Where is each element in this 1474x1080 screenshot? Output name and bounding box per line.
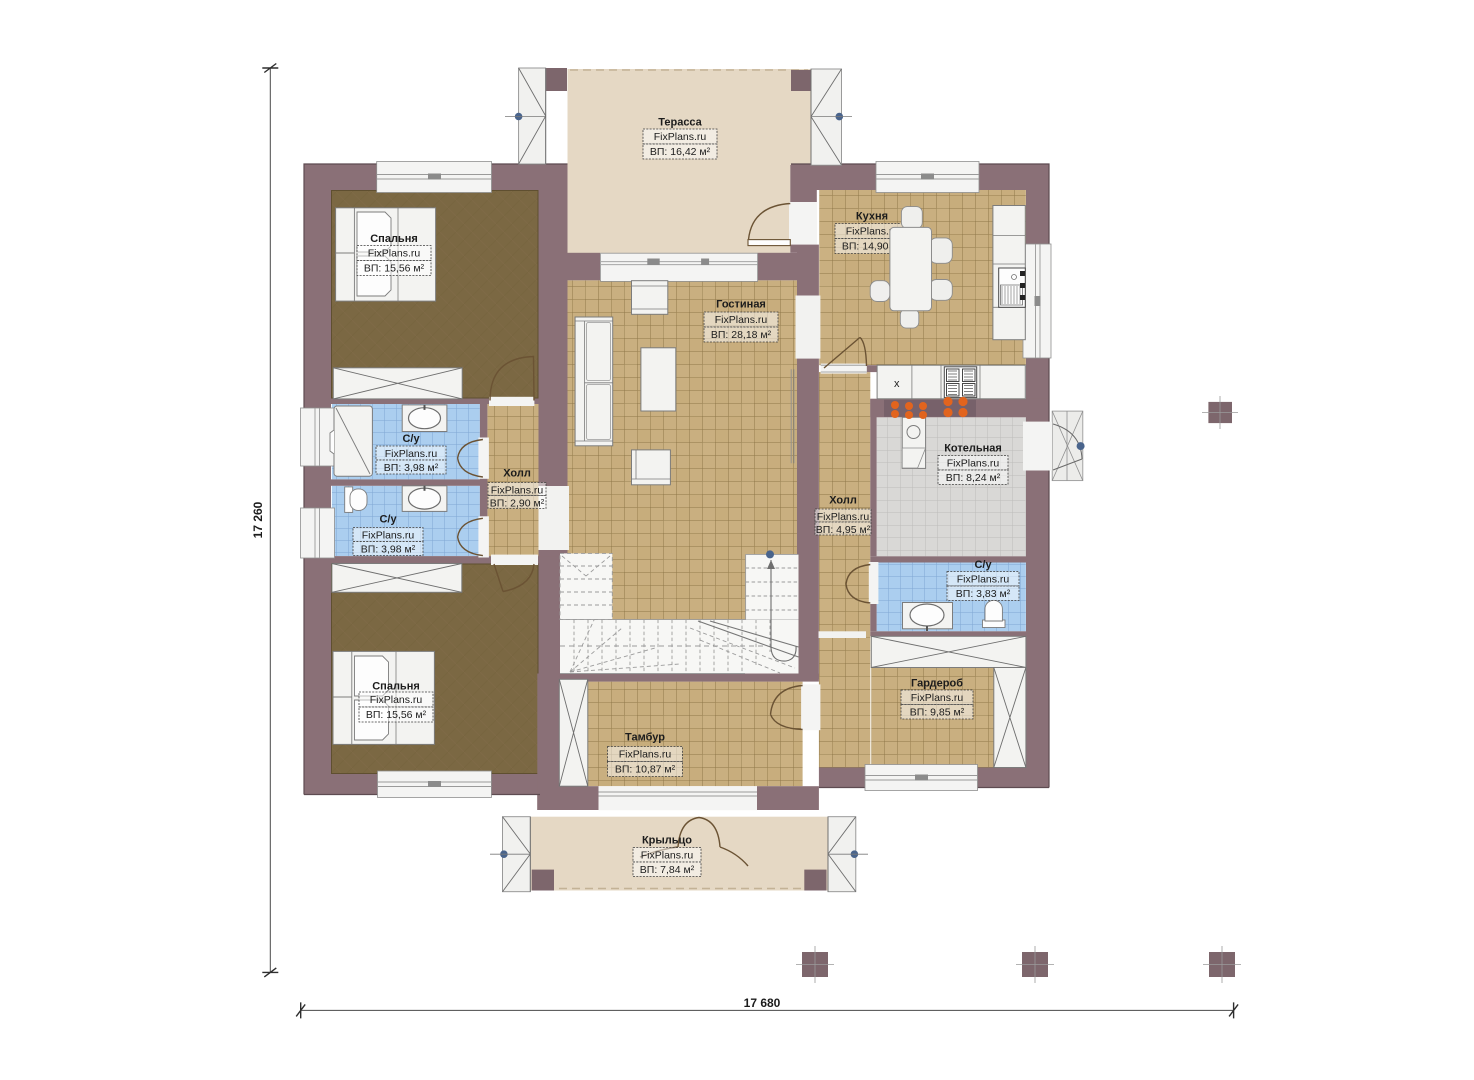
svg-text:FixPlans.ru: FixPlans.ru xyxy=(385,448,438,460)
svg-text:С/у: С/у xyxy=(379,514,397,526)
svg-text:ВП: 15,56 м²: ВП: 15,56 м² xyxy=(366,709,427,721)
svg-text:FixPlans.ru: FixPlans.ru xyxy=(654,131,707,143)
svg-text:FixPlans.ru: FixPlans.ru xyxy=(362,530,415,542)
svg-text:ВП: 10,87 м²: ВП: 10,87 м² xyxy=(615,764,676,776)
svg-text:Спальня: Спальня xyxy=(370,233,418,245)
svg-text:ВП: 15,56 м²: ВП: 15,56 м² xyxy=(364,263,425,275)
svg-text:ВП: 3,98 м²: ВП: 3,98 м² xyxy=(384,462,439,474)
svg-text:ВП: 3,83 м²: ВП: 3,83 м² xyxy=(956,588,1011,600)
svg-text:Спальня: Спальня xyxy=(372,681,420,693)
svg-text:x: x xyxy=(894,378,900,390)
svg-text:С/у: С/у xyxy=(402,433,420,445)
svg-text:ВП: 8,24 м²: ВП: 8,24 м² xyxy=(946,472,1001,484)
svg-text:FixPlans.ru: FixPlans.ru xyxy=(619,749,672,761)
svg-text:Крыльцо: Крыльцо xyxy=(642,835,692,847)
svg-text:FixPlans.ru: FixPlans.ru xyxy=(370,694,423,706)
svg-text:Холл: Холл xyxy=(829,495,857,507)
svg-text:Холл: Холл xyxy=(503,468,531,480)
svg-text:17 260: 17 260 xyxy=(251,501,265,538)
svg-text:ВП: 2,90 м²: ВП: 2,90 м² xyxy=(490,498,545,510)
svg-text:FixPlans.ru: FixPlans.ru xyxy=(715,314,768,326)
svg-text:FixPlans.ru: FixPlans.ru xyxy=(817,511,870,523)
svg-text:ВП: 28,18 м²: ВП: 28,18 м² xyxy=(711,329,772,341)
svg-text:Терасса: Терасса xyxy=(658,117,702,129)
svg-text:ВП: 16,42 м²: ВП: 16,42 м² xyxy=(650,146,711,158)
svg-text:ВП: 4,95 м²: ВП: 4,95 м² xyxy=(816,524,871,536)
svg-text:FixPlans.ru: FixPlans.ru xyxy=(368,248,421,260)
svg-text:17 680: 17 680 xyxy=(744,996,781,1010)
svg-text:Кухня: Кухня xyxy=(856,211,888,223)
svg-text:Гардероб: Гардероб xyxy=(911,678,963,690)
svg-text:Гостиная: Гостиная xyxy=(716,299,766,311)
svg-text:С/у: С/у xyxy=(974,559,992,571)
svg-text:ВП: 3,98 м²: ВП: 3,98 м² xyxy=(361,544,416,556)
svg-text:FixPlans.ru: FixPlans.ru xyxy=(641,850,694,862)
svg-text:ВП: 7,84 м²: ВП: 7,84 м² xyxy=(640,864,695,876)
svg-text:Котельная: Котельная xyxy=(944,443,1002,455)
svg-text:ВП: 9,85 м²: ВП: 9,85 м² xyxy=(910,707,965,719)
svg-text:FixPlans.ru: FixPlans.ru xyxy=(947,458,1000,470)
svg-text:Тамбур: Тамбур xyxy=(625,732,665,744)
svg-text:FixPlans.ru: FixPlans.ru xyxy=(957,574,1010,586)
svg-text:FixPlans.ru: FixPlans.ru xyxy=(491,485,544,497)
svg-text:FixPlans.ru: FixPlans.ru xyxy=(911,692,964,704)
